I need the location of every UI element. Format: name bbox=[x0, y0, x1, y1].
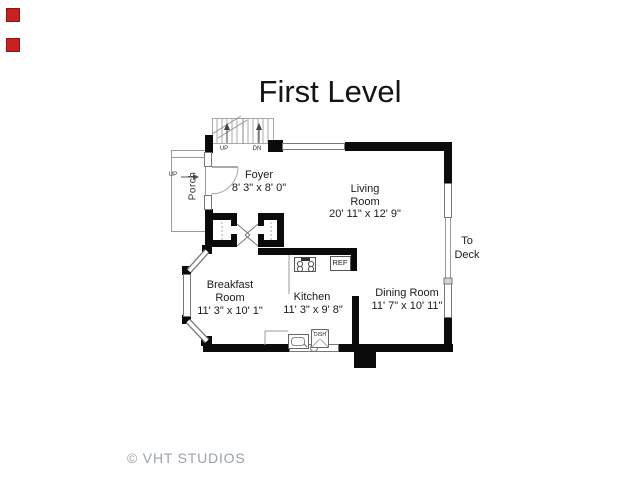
windows bbox=[184, 144, 452, 352]
foyer-dims: 8' 3" x 8' 0" bbox=[232, 182, 286, 194]
floor-plan-page: First Level bbox=[0, 0, 640, 480]
living-name-1: Living bbox=[351, 183, 380, 195]
breakfast-name-2: Room bbox=[215, 292, 244, 304]
kitchen-name: Kitchen bbox=[294, 291, 331, 303]
breakfast-dims: 11' 3" x 10' 1" bbox=[197, 305, 263, 317]
stairs-down-label: DN bbox=[253, 146, 262, 153]
dishwasher-label: DISH bbox=[313, 333, 327, 339]
watermark: © VHT STUDIOS bbox=[127, 450, 245, 466]
dining-dims: 11' 7" x 10' 11" bbox=[372, 300, 443, 312]
deck-sliding-door bbox=[444, 218, 452, 284]
stairs bbox=[212, 116, 274, 144]
to-deck-2: Deck bbox=[454, 249, 479, 261]
to-deck-1: To bbox=[461, 235, 473, 247]
breakfast-name-1: Breakfast bbox=[207, 279, 253, 291]
porch-up-label: UP bbox=[169, 172, 177, 179]
dining-name: Dining Room bbox=[375, 287, 439, 299]
kitchen-counter bbox=[265, 255, 289, 345]
closet-doors bbox=[237, 224, 258, 246]
refrigerator-label: REF bbox=[333, 259, 348, 267]
kitchen-dims: 11' 3" x 9' 8" bbox=[283, 304, 343, 316]
living-name-2: Room bbox=[350, 196, 379, 208]
living-dims: 20' 11" x 12' 9" bbox=[329, 208, 401, 220]
sink bbox=[289, 335, 309, 349]
porch-name: Porch bbox=[188, 172, 199, 201]
foyer-name: Foyer bbox=[245, 169, 273, 181]
stairs-up-label: UP bbox=[220, 146, 228, 153]
stove bbox=[295, 258, 316, 272]
floor-plan-drawing bbox=[0, 0, 640, 480]
